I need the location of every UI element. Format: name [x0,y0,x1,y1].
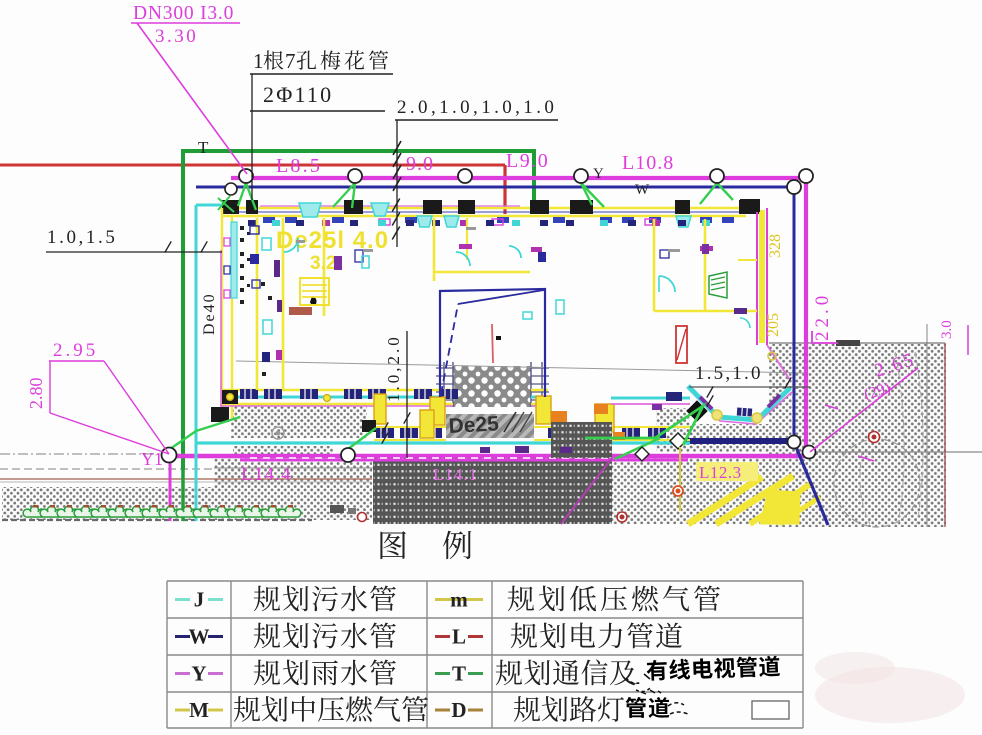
svg-text:J: J [194,588,205,612]
svg-text:L14.4: L14.4 [241,464,292,485]
svg-text:205: 205 [765,313,782,337]
svg-text:2.95: 2.95 [53,340,98,361]
svg-text:9.0: 9.0 [406,153,434,175]
svg-text:T: T [452,662,466,686]
svg-text:Y: Y [191,662,206,686]
svg-text:2Φ110: 2Φ110 [263,82,333,107]
svg-text:L9.0: L9.0 [506,150,549,172]
svg-text:W: W [635,182,650,198]
svg-text:L12.3: L12.3 [699,463,742,482]
svg-text:L10.8: L10.8 [622,152,674,174]
svg-text:Y1: Y1 [141,449,163,469]
svg-text:De40: De40 [201,292,218,335]
svg-text:m: m [450,588,468,612]
svg-text:1: 1 [253,49,264,73]
svg-text:T: T [198,138,209,157]
svg-text:1.0,1.5: 1.0,1.5 [47,227,117,248]
svg-text:L: L [452,625,466,649]
svg-text:3.0: 3.0 [939,320,955,339]
svg-text:Y: Y [593,166,604,182]
svg-text:M: M [189,698,209,722]
svg-text:D: D [451,698,466,722]
svg-text:1.5,1.0: 1.5,1.0 [695,363,763,384]
svg-text:1.0,2.0: 1.0,2.0 [384,334,403,402]
svg-text:7: 7 [285,49,296,73]
svg-text:2.80: 2.80 [26,378,46,410]
svg-text:328: 328 [767,234,784,258]
svg-text:L8.5: L8.5 [276,155,322,177]
svg-text:W: W [189,625,210,649]
svg-text:3.2: 3.2 [310,253,336,274]
svg-text:De25: De25 [448,412,500,438]
svg-text:2.0,1.0,1.0,1.0: 2.0,1.0,1.0,1.0 [397,97,557,118]
svg-text:DN300 I3.0: DN300 I3.0 [133,3,234,24]
svg-text:3.30: 3.30 [155,26,198,47]
svg-text:L14.1: L14.1 [433,465,478,484]
svg-text:22.0: 22.0 [812,292,833,341]
